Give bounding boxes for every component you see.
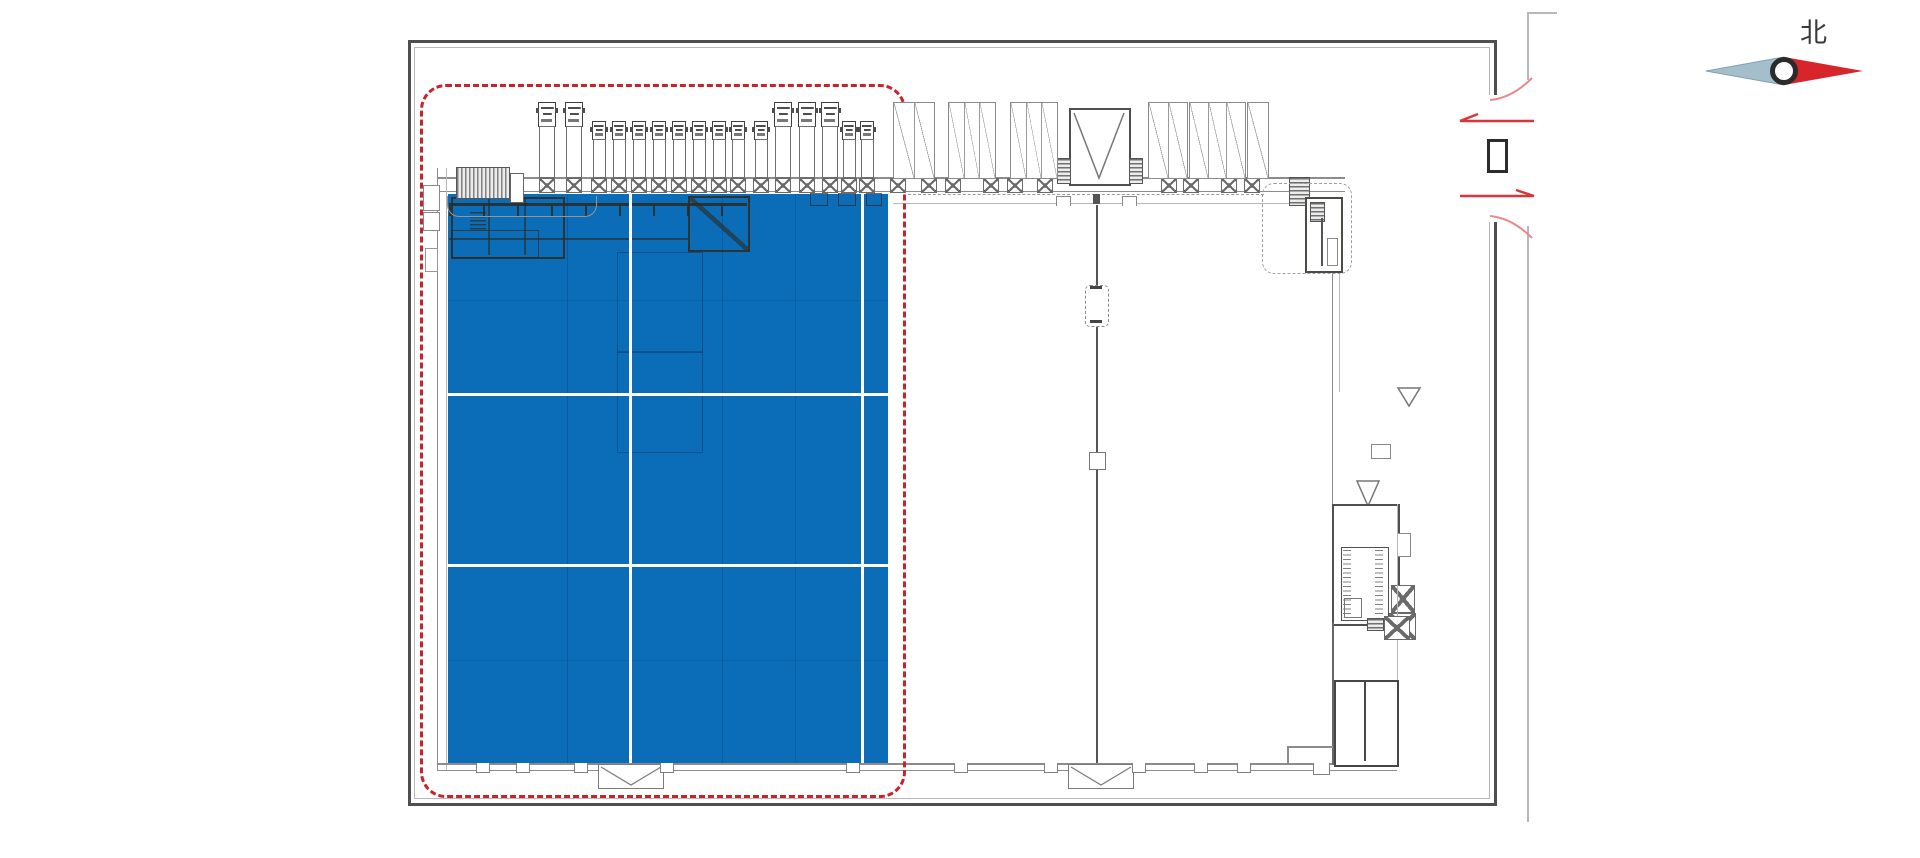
truck-cab	[538, 102, 556, 127]
truck-trailer	[713, 139, 726, 178]
truck-cab	[860, 121, 874, 140]
truck-trailer	[861, 139, 874, 178]
canopy-panel	[1149, 103, 1169, 178]
truck-cab	[565, 102, 583, 127]
dock-bumper	[954, 763, 968, 773]
truck-trailer	[673, 139, 686, 178]
wall-column-x	[1244, 178, 1260, 193]
canopy-panel	[1227, 103, 1245, 178]
wall-column-x	[651, 178, 667, 193]
dock-canopy	[1189, 102, 1246, 179]
truck-cab	[731, 121, 745, 140]
wall-column-x	[711, 178, 727, 193]
truck-cab	[632, 121, 646, 140]
site-plan-drawing: 北	[0, 0, 1920, 858]
truck-cab	[612, 121, 626, 140]
canopy-panel	[1027, 103, 1043, 178]
truck-trailer	[775, 126, 791, 178]
dock-bumper	[846, 763, 860, 773]
wall-column-x	[1007, 178, 1023, 193]
court-divider-h	[448, 393, 888, 396]
truck-trailer	[653, 139, 666, 178]
wall-column-x	[1221, 178, 1237, 193]
truck-trailer	[566, 126, 582, 178]
dock-bumper	[1194, 763, 1208, 773]
wall-column-x	[945, 178, 961, 193]
wall-column-x	[611, 178, 627, 193]
canopy-panel	[1209, 103, 1228, 178]
truck-trailer	[613, 139, 626, 178]
canopy-panel	[1169, 103, 1188, 178]
dock-door	[1068, 764, 1134, 789]
truck-cab	[592, 121, 606, 140]
dock-canopy	[893, 102, 935, 179]
truck-cab	[712, 121, 726, 140]
dock-bumper	[476, 763, 490, 773]
truck-cab	[821, 102, 839, 127]
truck-trailer	[633, 139, 646, 178]
canopy-panel	[965, 103, 981, 178]
truck-trailer	[799, 126, 815, 178]
dock-bumper	[574, 763, 588, 773]
truck-cab	[798, 102, 816, 127]
dock-bumper	[1044, 763, 1058, 773]
canopy-panel	[1248, 103, 1268, 178]
wall-column-x	[591, 178, 607, 193]
wall-column-x	[799, 178, 815, 193]
wall-column-x	[1183, 178, 1199, 193]
wall-column-x	[890, 178, 906, 193]
dock-door	[598, 764, 664, 789]
wall-column-x	[671, 178, 687, 193]
dock-bumper	[516, 763, 530, 773]
wall-column-x	[753, 178, 769, 193]
truck-cab	[672, 121, 686, 140]
wall-column-x	[631, 178, 647, 193]
court-divider-v	[861, 194, 864, 763]
canopy-panel	[1042, 103, 1057, 178]
truck-cab	[652, 121, 666, 140]
truck-trailer	[755, 139, 768, 178]
canopy-panel	[1011, 103, 1027, 178]
canopy-panel	[915, 103, 935, 178]
dock-canopy	[1010, 102, 1058, 179]
truck-trailer	[539, 126, 555, 178]
truck-trailer	[843, 139, 856, 178]
wall-column-x	[921, 178, 937, 193]
truck-cab	[774, 102, 792, 127]
dock-bumper	[1132, 763, 1146, 773]
truck-trailer	[822, 126, 838, 178]
wall-column-x	[730, 178, 746, 193]
truck-cab	[842, 121, 856, 140]
wall-column-x	[822, 178, 838, 193]
court-divider-h	[448, 564, 888, 567]
dock-bumper	[1237, 763, 1251, 773]
dock-canopy	[1148, 102, 1188, 179]
wall-column-x	[775, 178, 791, 193]
canopy-panel	[894, 103, 915, 178]
dock-bumper	[660, 763, 674, 773]
wall-column-x	[1037, 178, 1053, 193]
wall-column-x	[1161, 178, 1177, 193]
court-divider-v	[629, 194, 632, 763]
truck-trailer	[593, 139, 606, 178]
canopy-panel	[1190, 103, 1209, 178]
truck-cab	[754, 121, 768, 140]
wall-column-x	[691, 178, 707, 193]
canopy-panel	[980, 103, 995, 178]
wall-column-x	[841, 178, 857, 193]
canopy-panel	[949, 103, 965, 178]
truck-trailer	[732, 139, 745, 178]
truck-cab	[692, 121, 706, 140]
generated-layer	[0, 0, 1920, 858]
truck-trailer	[693, 139, 706, 178]
wall-column-x	[983, 178, 999, 193]
dock-canopy	[948, 102, 996, 179]
wall-column-x	[539, 178, 555, 193]
wall-column-x	[859, 178, 875, 193]
dock-canopy	[1247, 102, 1269, 179]
wall-column-x	[566, 178, 582, 193]
